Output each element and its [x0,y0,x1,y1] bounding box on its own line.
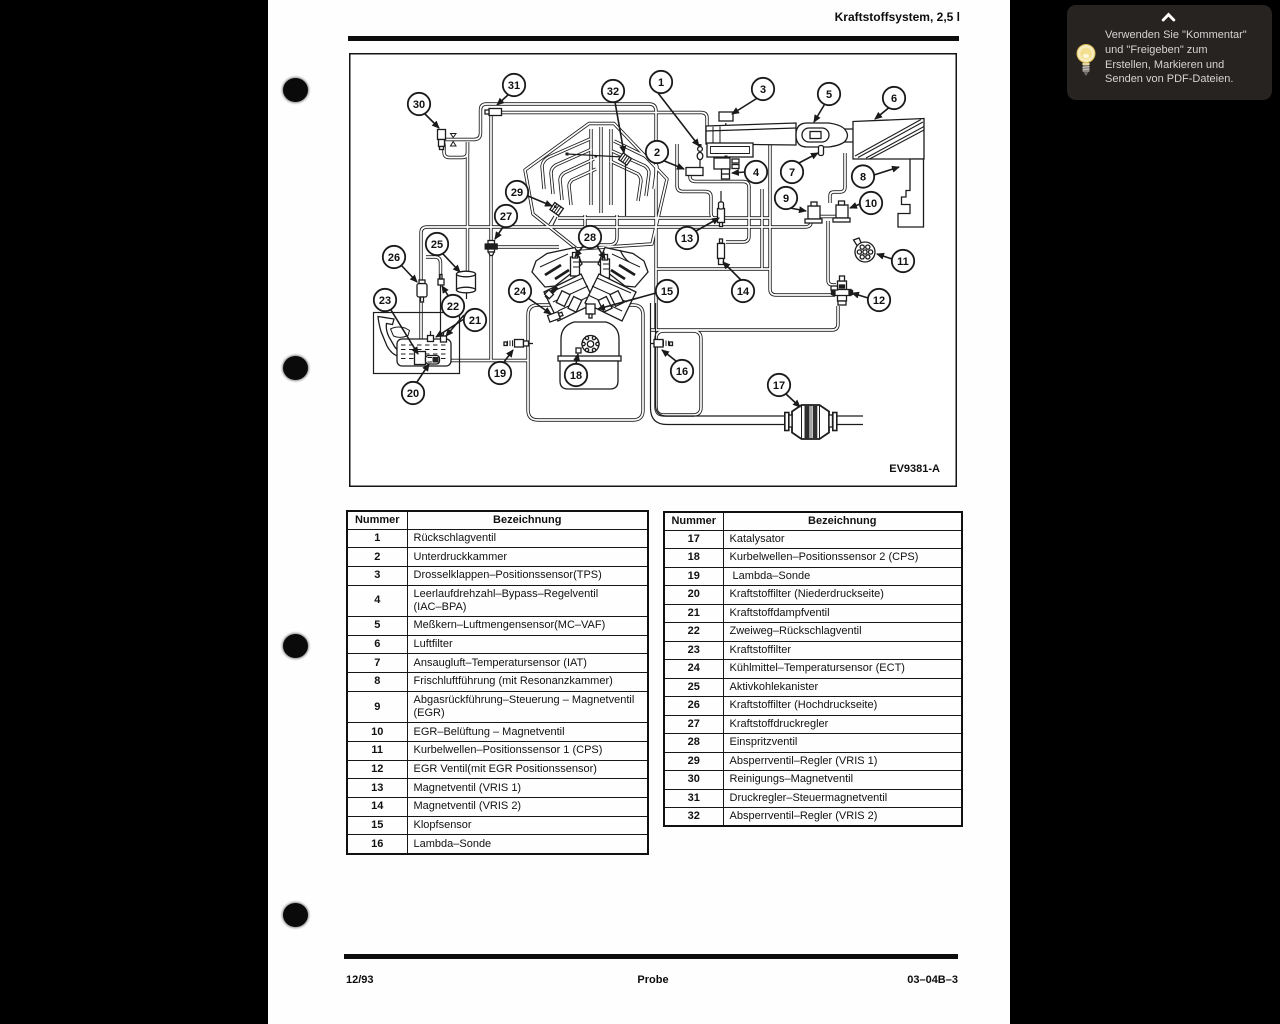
svg-text:EV9381-A: EV9381-A [889,463,940,475]
svg-text:30: 30 [413,99,425,111]
svg-text:6: 6 [891,93,897,105]
svg-text:18: 18 [570,370,582,382]
svg-text:22: 22 [447,301,459,313]
svg-text:10: 10 [865,198,877,210]
svg-text:3: 3 [760,84,766,96]
svg-text:7: 7 [789,167,795,179]
svg-text:17: 17 [773,380,785,392]
svg-text:1: 1 [658,77,664,89]
svg-text:24: 24 [514,286,527,298]
svg-text:14: 14 [737,286,750,298]
svg-text:32: 32 [607,86,619,98]
svg-text:27: 27 [500,211,512,223]
svg-text:16: 16 [676,366,688,378]
svg-text:26: 26 [388,252,400,264]
svg-text:28: 28 [584,232,596,244]
svg-text:13: 13 [681,233,693,245]
svg-text:2: 2 [654,147,660,159]
svg-text:8: 8 [860,172,866,184]
svg-text:29: 29 [511,187,523,199]
svg-text:20: 20 [407,388,419,400]
svg-text:15: 15 [661,286,673,298]
svg-text:23: 23 [379,295,391,307]
svg-text:25: 25 [431,239,443,251]
svg-text:19: 19 [494,368,506,380]
svg-text:31: 31 [508,80,520,92]
svg-text:12: 12 [873,295,885,307]
svg-text:9: 9 [783,193,789,205]
svg-text:5: 5 [826,89,832,101]
svg-text:21: 21 [469,315,481,327]
svg-text:4: 4 [753,167,760,179]
svg-text:11: 11 [897,256,909,268]
